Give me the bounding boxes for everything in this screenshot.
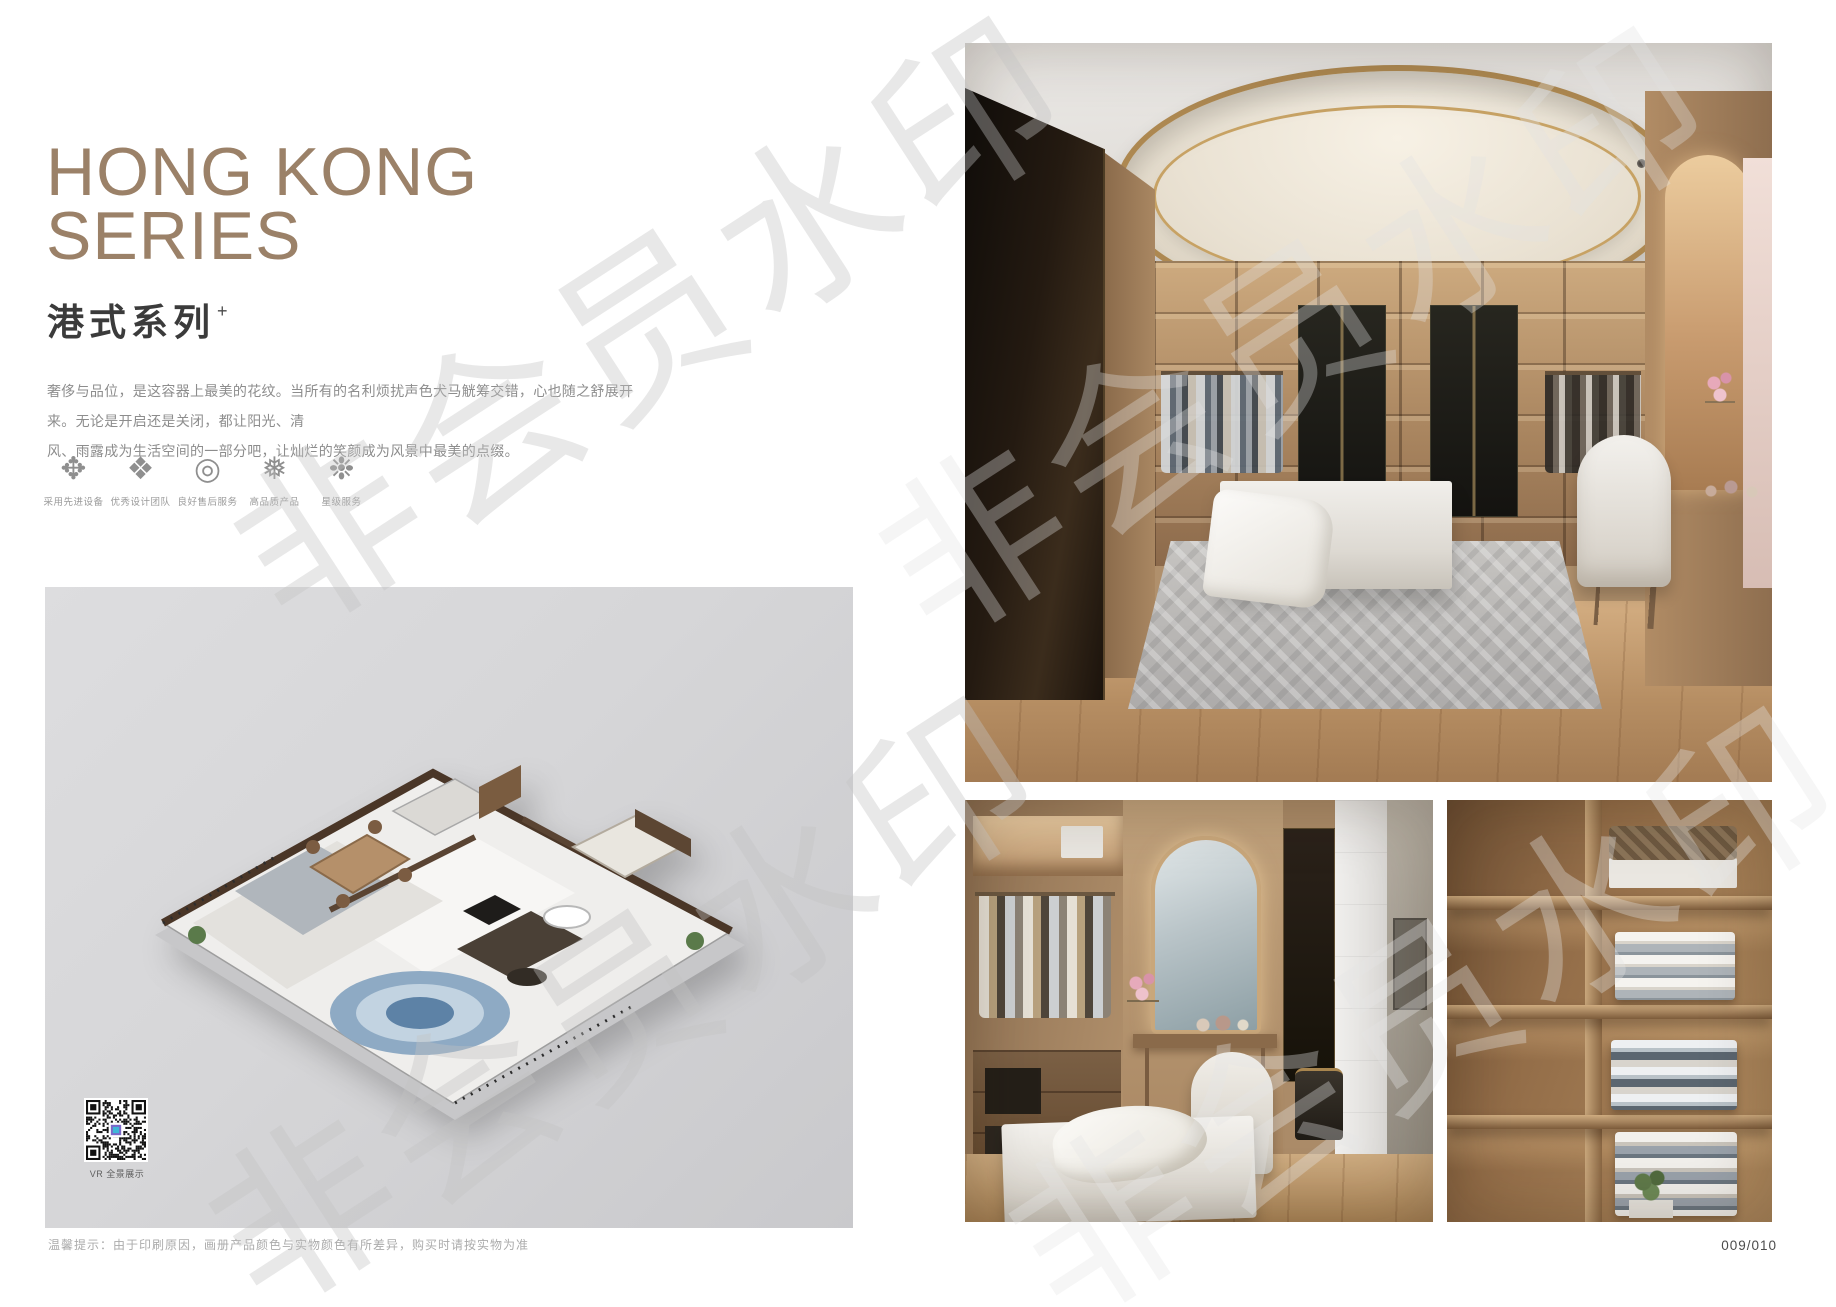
shelf-board	[1447, 896, 1772, 910]
feature-label: 采用先进设备	[40, 494, 107, 508]
vanity-mirror	[1151, 836, 1261, 1034]
feature-label: 优秀设计团队	[107, 494, 174, 508]
feature-label: 高品质产品	[241, 494, 308, 508]
floorplan-image: VR 全景展示	[45, 587, 853, 1228]
vanity-table	[1133, 1034, 1277, 1048]
series-title-cn: 港式系列+	[47, 292, 233, 346]
small-plant	[1629, 1168, 1673, 1218]
shelf-board	[1447, 1005, 1772, 1019]
hanging-clothes	[979, 896, 1111, 1018]
series-title-line2: SERIES	[46, 198, 301, 274]
vr-panorama-caption: VR 全景展示	[81, 1167, 153, 1180]
series-title-en: HONG KONG SERIES	[46, 140, 478, 268]
description-line1: 奢侈与品位，是这容器上最美的花纹。当所有的名利烦扰声色犬马觥筹交错，心也随之舒展…	[47, 383, 633, 429]
feature-label: 星级服务	[308, 494, 375, 508]
photo-dressing-area	[965, 800, 1433, 1222]
plus-mark: +	[217, 301, 233, 321]
ceiling-light-inner-ring	[1153, 105, 1641, 287]
perfume-bottles	[1193, 1006, 1257, 1034]
storage-box	[1061, 826, 1103, 858]
feature-advanced-equipment: ✥ 采用先进设备	[40, 450, 107, 508]
flower-vase	[1127, 972, 1159, 1036]
ornament-flower-icon: ✥	[40, 450, 107, 490]
feature-design-team: ❖ 优秀设计团队	[107, 450, 174, 508]
vanity-chair	[1577, 435, 1671, 587]
shelf-board	[1447, 1115, 1772, 1129]
photo-wardrobe-shelves	[1447, 800, 1772, 1222]
dark-glass-cabinet	[1283, 828, 1335, 1082]
photo-walk-in-closet: VR 全景展示	[965, 43, 1772, 782]
ring-icon: ◎	[174, 450, 241, 490]
storage-box	[985, 1068, 1041, 1114]
ornament-diamond-icon: ❖	[107, 450, 174, 490]
throw-blanket	[1202, 488, 1336, 610]
feature-star-service: ❉ 星级服务	[308, 450, 375, 508]
wood-side-panel	[1105, 153, 1155, 678]
hanging-clothes	[1161, 371, 1283, 473]
feature-label: 良好售后服务	[174, 494, 241, 508]
isometric-floorplan-render	[75, 605, 815, 1165]
print-disclaimer: 温馨提示：由于印刷原因，画册产品颜色与实物颜色有所差异，购买时请按实物为准	[48, 1236, 529, 1253]
feature-list: ✥ 采用先进设备 ❖ 优秀设计团队 ◎ 良好售后服务 ❅ 高品质产品 ❉ 星级服…	[40, 450, 375, 508]
series-title-cn-text: 港式系列	[47, 302, 215, 343]
flower-vase	[1705, 371, 1735, 443]
table-leg	[1145, 1048, 1149, 1110]
woven-basket	[1609, 826, 1737, 860]
feature-after-sales: ◎ 良好售后服务	[174, 450, 241, 508]
folded-clothes-stack	[1611, 1040, 1737, 1110]
wall-art	[1393, 918, 1427, 1010]
drum-side-table	[1295, 1068, 1343, 1140]
page-number: 009/010	[1721, 1238, 1777, 1253]
catalog-page: 非会员水印 非会员水印 非会员水印 非会员水印 HONG KONG SERIES…	[0, 0, 1836, 1307]
vanity-table	[1697, 471, 1772, 566]
dark-glass-wardrobe	[965, 88, 1105, 700]
qr-code	[84, 1098, 148, 1162]
feature-quality-product: ❅ 高品质产品	[241, 450, 308, 508]
snowflake-icon: ❅	[241, 450, 308, 490]
star-ornament-icon: ❉	[308, 450, 375, 490]
chair-legs	[1594, 581, 1657, 629]
folded-clothes-stack	[1615, 932, 1735, 1000]
drawer-box	[1609, 858, 1737, 888]
